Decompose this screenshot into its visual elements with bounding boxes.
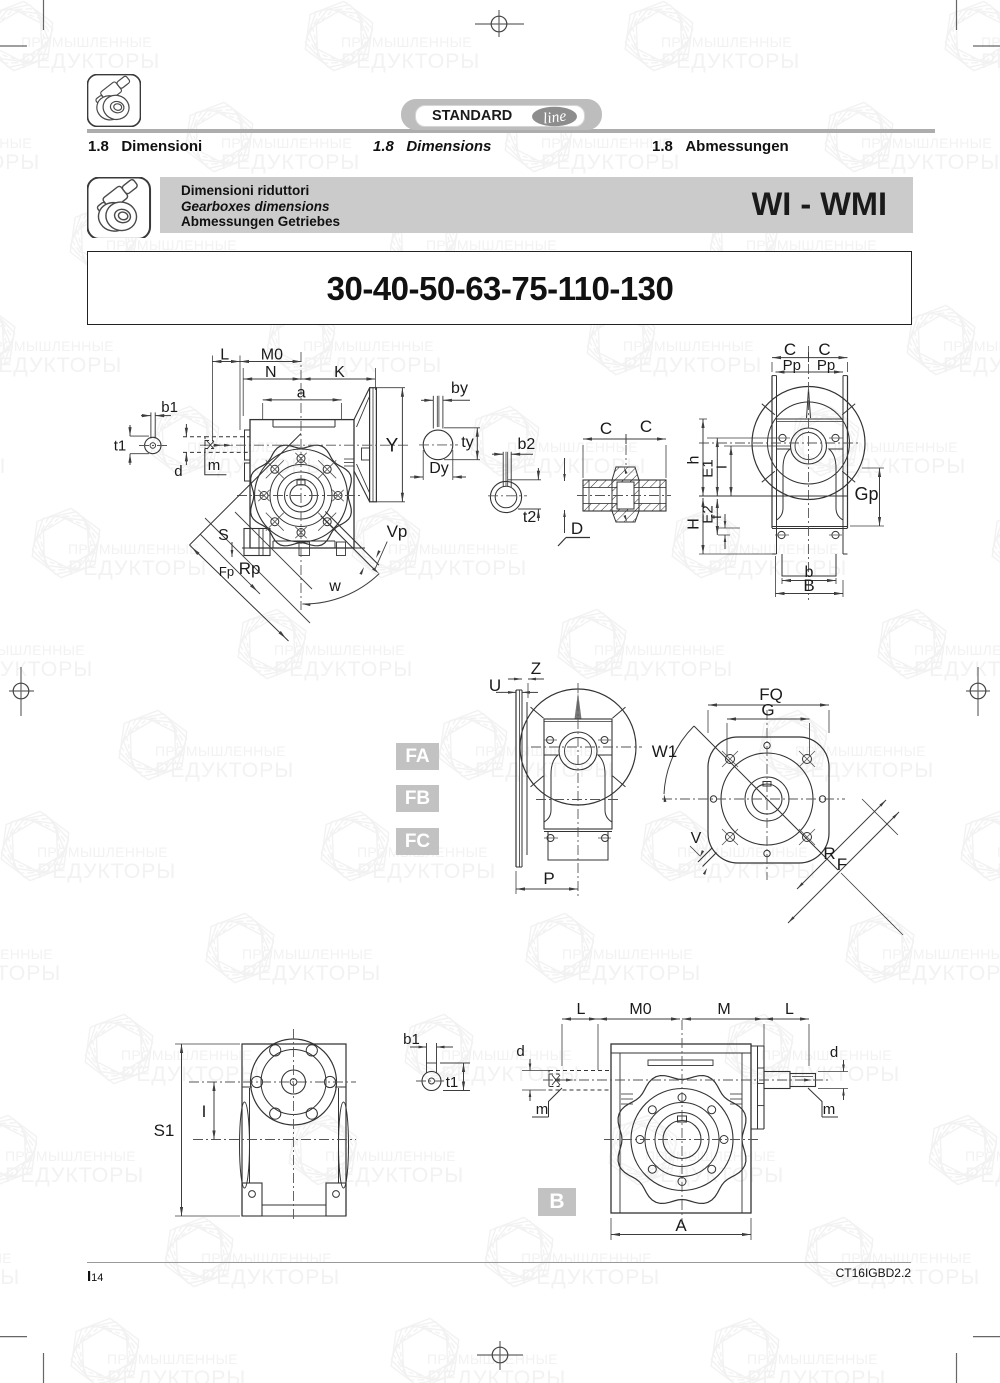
svg-text:f: f <box>708 515 724 519</box>
svg-text:Rp: Rp <box>239 559 261 578</box>
svg-text:Z: Z <box>531 659 541 678</box>
svg-text:d: d <box>830 1044 838 1061</box>
svg-text:m: m <box>823 1101 836 1118</box>
svg-text:Fp: Fp <box>219 564 234 579</box>
svg-text:I: I <box>202 1102 207 1121</box>
svg-text:b1: b1 <box>161 399 178 416</box>
svg-text:C: C <box>640 417 652 436</box>
svg-text:Pp: Pp <box>783 357 801 374</box>
svg-text:d: d <box>174 463 182 480</box>
svg-text:b1: b1 <box>403 1031 420 1048</box>
svg-text:t1: t1 <box>446 1074 459 1091</box>
svg-text:V: V <box>691 830 702 847</box>
svg-text:Pp: Pp <box>817 357 835 374</box>
svg-text:B: B <box>803 576 814 595</box>
svg-text:W1: W1 <box>652 742 678 761</box>
svg-text:w: w <box>328 578 341 595</box>
svg-text:M0: M0 <box>629 1001 651 1018</box>
svg-text:F: F <box>837 855 847 874</box>
svg-text:C: C <box>600 419 612 438</box>
svg-text:K: K <box>334 364 345 381</box>
svg-text:m: m <box>536 1101 549 1118</box>
svg-text:P: P <box>543 869 554 888</box>
svg-text:D: D <box>571 519 583 538</box>
svg-text:M: M <box>717 1001 730 1018</box>
svg-text:b2: b2 <box>518 436 536 453</box>
svg-text:L: L <box>785 1001 794 1018</box>
svg-text:Vp: Vp <box>387 522 408 541</box>
svg-text:S1: S1 <box>154 1121 175 1140</box>
svg-text:M0: M0 <box>261 347 283 364</box>
svg-text:S: S <box>218 527 229 544</box>
svg-text:a: a <box>297 385 306 402</box>
svg-text:N: N <box>265 364 277 381</box>
svg-text:I: I <box>714 465 731 469</box>
svg-text:Dy: Dy <box>429 460 449 477</box>
svg-text:G: G <box>761 701 774 720</box>
svg-text:Y: Y <box>386 436 399 457</box>
svg-text:t2: t2 <box>523 509 536 526</box>
svg-text:L: L <box>577 1001 586 1018</box>
svg-text:by: by <box>451 380 468 397</box>
svg-text:m: m <box>208 457 221 474</box>
svg-text:ty: ty <box>461 434 473 451</box>
svg-text:d: d <box>516 1043 524 1060</box>
svg-text:Gp: Gp <box>854 484 878 504</box>
svg-text:A: A <box>675 1216 687 1235</box>
svg-text:R: R <box>823 844 835 863</box>
svg-text:L: L <box>220 347 229 364</box>
svg-text:t1: t1 <box>114 438 127 455</box>
svg-text:E2: E2 <box>700 505 717 523</box>
